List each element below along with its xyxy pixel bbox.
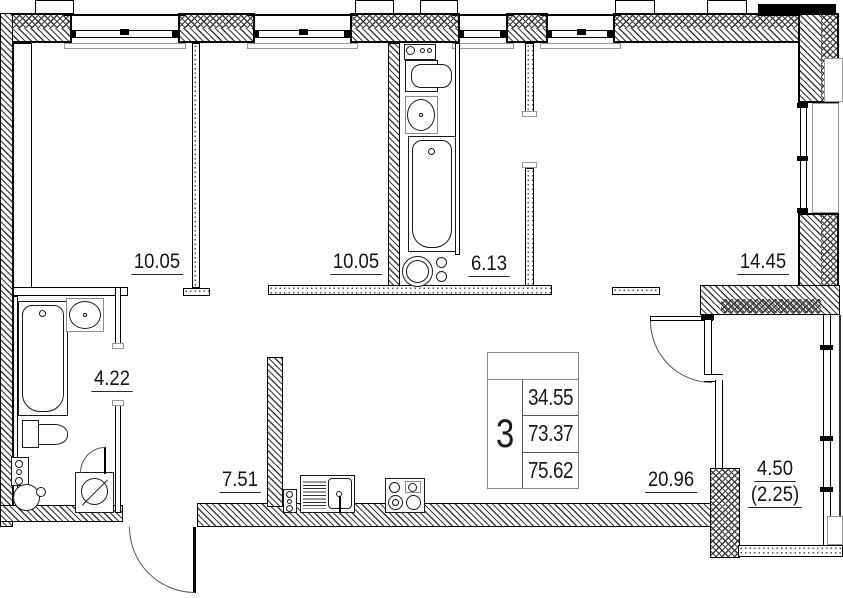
balcony-ledge [827,516,843,545]
partition [388,43,400,287]
wall-segment [350,13,460,43]
door-arc [650,321,712,383]
window-sill [540,43,621,49]
gas-pipe [286,491,293,498]
cabinet-knob [15,460,23,468]
window-tick [797,103,808,108]
facade-line [452,14,514,16]
cabinet-top [411,64,452,88]
window-tick [546,30,552,38]
stove-burner [389,482,400,493]
partition-foot [183,288,210,296]
bathtub-inner [412,140,452,248]
window-tick [458,30,464,38]
partition [13,287,128,296]
bidet-tap [36,487,46,497]
window-sill [812,103,839,213]
area-label-room-3: 14.45 [737,251,789,275]
wall-air-gap [13,43,32,288]
area-label-room-2: 10.05 [330,251,382,275]
cabinet-knob [16,469,22,475]
washer-knob [420,48,425,53]
window-tick [820,436,833,441]
pilaster [615,0,655,14]
partition [267,357,283,507]
toilet-bowl [38,424,68,445]
window-tick [172,30,178,38]
window-sill [452,43,514,49]
window-tick [70,30,76,38]
window-tick [797,156,808,161]
bathtub-inner [22,305,64,412]
window-tick [607,30,613,38]
partition [115,405,121,513]
info-table-header [488,353,578,380]
rooms-count-value: 3 [496,412,514,457]
floor-plan: 10.05 10.05 6.13 14.45 4.22 7.51 20.96 4… [0,0,843,598]
washbasin-drain [83,313,87,317]
washbasin-drain [419,113,423,117]
partition [612,287,660,295]
washer-knob [406,46,415,55]
sink-drainboard [303,479,326,509]
window-tick [577,29,586,35]
balcony-rail [839,315,841,545]
pilaster [420,0,458,14]
partition [525,168,534,287]
toilet-tank [22,420,39,448]
sink-faucet [339,495,341,512]
total-area-value: 75.62 [523,453,578,488]
window-tick [820,487,833,492]
pilaster [355,0,394,14]
window-tick [820,345,833,350]
bathtub-drain [428,148,435,155]
living-area-text: 34.55 [528,384,573,411]
area-label-balcony: 4.50 [754,458,795,482]
pilaster [707,0,747,14]
partition [525,43,534,117]
wall-segment [506,13,548,43]
wall-segment [710,468,740,558]
rooms-count: 3 [488,380,523,488]
area-label-living-room: 20.96 [645,469,697,493]
area-label-balcony-coef: (2.25) [748,484,802,508]
total-area-text: 75.62 [528,457,573,484]
partition [115,287,121,348]
facade-line [64,14,186,16]
wall-segment [178,13,255,43]
balcony-glazing [704,315,712,378]
wall-segment [798,213,839,290]
window-sill [247,43,358,49]
area-label-bathroom: 4.22 [91,368,132,392]
facade-line [540,14,621,16]
stove-burner [406,495,421,510]
balcony-glazing [715,380,723,472]
apartment-area-text: 73.37 [528,420,573,447]
toilet-flush [436,271,447,282]
gas-pipe [287,499,292,504]
window-tick [701,315,714,320]
wall-segment [0,13,13,527]
balcony-floor-edge [738,545,843,557]
washer-knob [427,48,432,53]
window-sill [64,43,186,49]
wall-insulation [721,299,821,313]
door-jamb [112,400,124,406]
window-tick [344,30,350,38]
stove-burner [408,483,417,492]
stove-burner [392,499,399,506]
window-tick [500,30,506,38]
info-table: 3 34.55 73.37 75.62 [487,352,579,489]
window-tick [299,29,308,35]
window-tick [253,30,259,38]
pilaster [35,0,74,14]
bathtub-drain [39,310,46,317]
partition [268,285,552,295]
partition [192,43,200,288]
window-tick [120,29,129,35]
area-label-room-1: 10.05 [131,251,183,275]
apartment-area-value: 73.37 [523,416,578,452]
window-sill [824,58,843,102]
door-jamb [112,343,124,349]
door-arc [129,527,195,593]
wall-segment [613,13,800,43]
area-label-corridor: 6.13 [468,253,509,277]
facade-line [247,14,358,16]
toilet-bowl [406,260,429,283]
gas-pipe [286,505,293,512]
living-area-value: 34.55 [523,380,578,416]
toilet-flush [436,257,447,268]
door-jamb [522,111,537,117]
bidet [13,484,40,511]
area-label-hall: 7.51 [219,469,260,493]
wall-segment [700,285,840,315]
door-arc [80,447,105,473]
door-jamb [522,162,537,168]
sink-faucet-base [336,491,342,497]
